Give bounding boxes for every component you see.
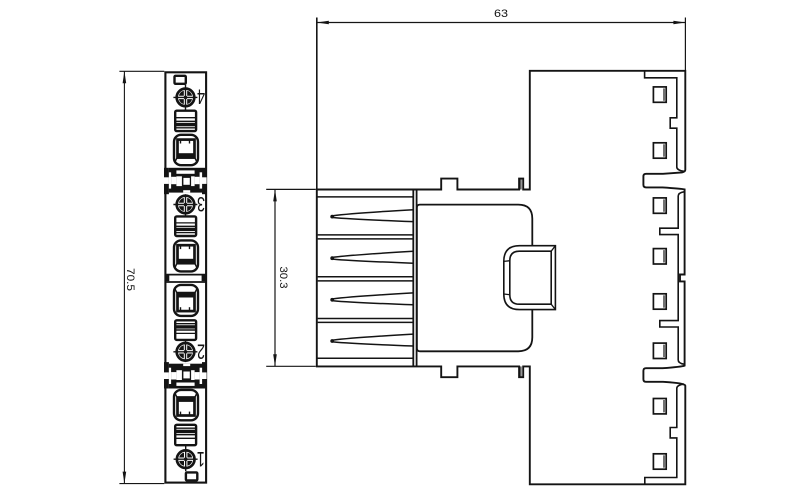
svg-text:2: 2 [197, 340, 205, 363]
svg-text:3: 3 [197, 192, 205, 215]
svg-text:70.5: 70.5 [124, 268, 136, 291]
svg-text:30.3: 30.3 [277, 267, 289, 289]
svg-text:1: 1 [197, 447, 205, 470]
svg-text:4: 4 [197, 85, 205, 108]
svg-text:63: 63 [494, 8, 508, 20]
